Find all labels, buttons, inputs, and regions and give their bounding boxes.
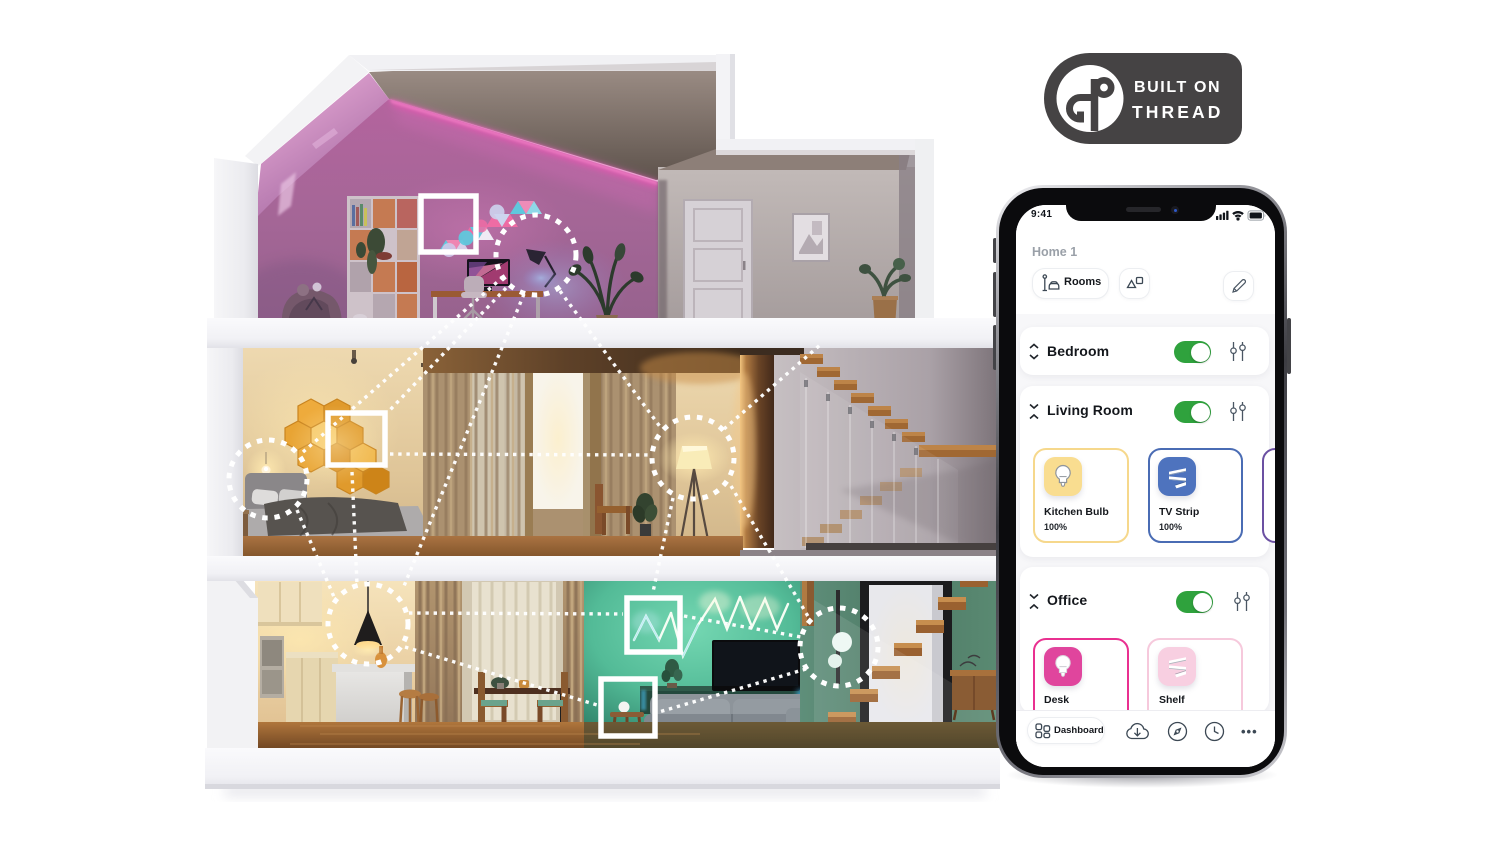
svg-text:THREAD: THREAD [1132,102,1224,122]
svg-text:BUILT ON: BUILT ON [1134,79,1221,96]
